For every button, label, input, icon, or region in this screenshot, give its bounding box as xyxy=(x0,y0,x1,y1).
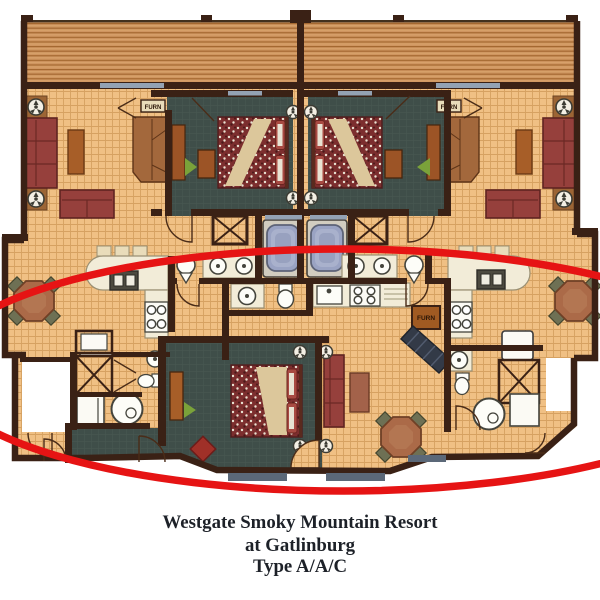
svg-text:Type A/A/C: Type A/A/C xyxy=(253,556,347,577)
svg-text:FURN: FURN xyxy=(145,105,162,111)
svg-text:at Gatlinburg: at Gatlinburg xyxy=(245,535,356,556)
svg-text:FURN: FURN xyxy=(417,315,435,322)
svg-text:Westgate Smoky Mountain Resort: Westgate Smoky Mountain Resort xyxy=(163,512,439,533)
